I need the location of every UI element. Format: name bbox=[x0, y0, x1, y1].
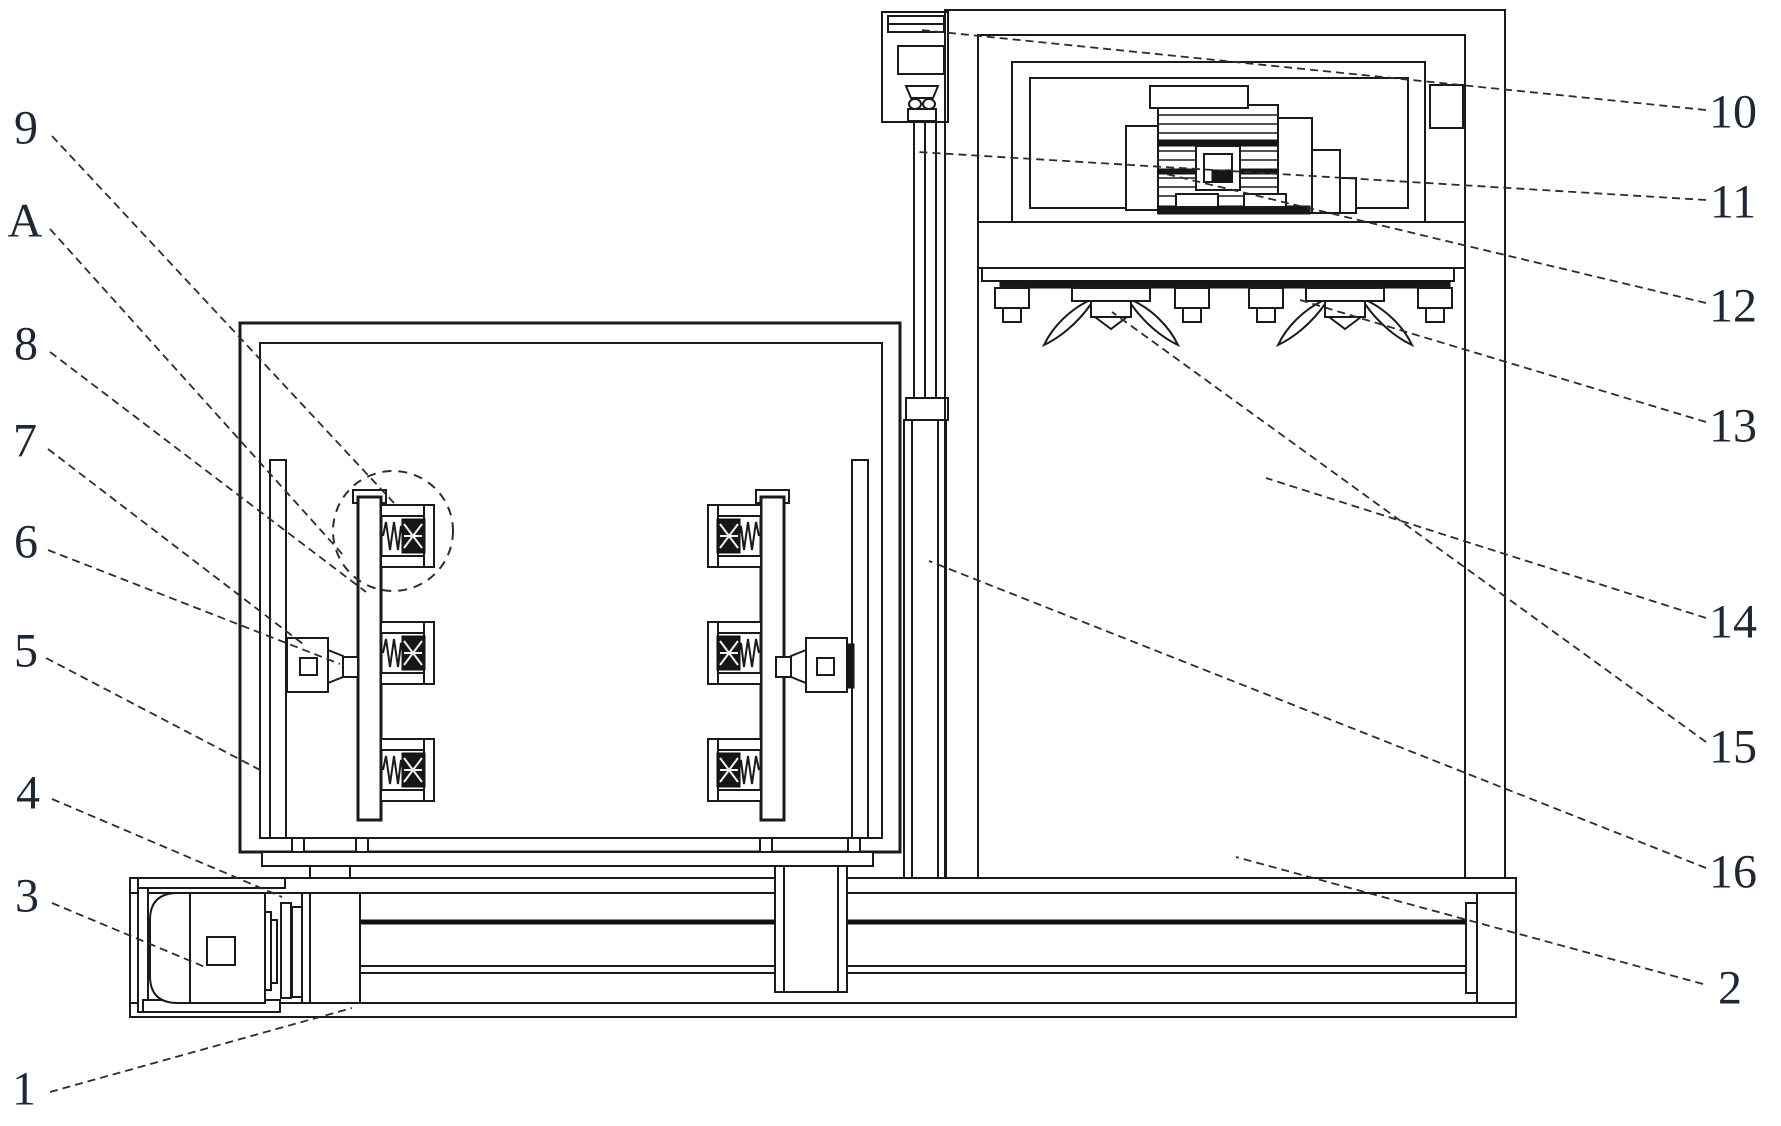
callout-leader-15 bbox=[1112, 312, 1706, 742]
nozzle-fitting bbox=[995, 288, 1029, 322]
callout-label-8: 8 bbox=[14, 318, 38, 371]
spray-nozzle-right bbox=[1278, 288, 1412, 345]
nozzle-fitting bbox=[1418, 288, 1452, 322]
callout-label-9: 9 bbox=[14, 102, 38, 155]
lift-tube bbox=[904, 420, 946, 878]
lift-collar bbox=[906, 398, 948, 420]
callout-leader-14 bbox=[1266, 478, 1706, 618]
callout-leader-16 bbox=[929, 561, 1706, 868]
left-upright bbox=[270, 460, 286, 838]
callout-label-6: 6 bbox=[14, 516, 38, 569]
callout-label-4: 4 bbox=[16, 767, 40, 820]
callout-label-2: 2 bbox=[1718, 962, 1742, 1015]
spring-clamp bbox=[381, 622, 434, 684]
spring-clamp bbox=[708, 739, 761, 801]
callout-label-12: 12 bbox=[1709, 280, 1757, 333]
figure-canvas: 9A8765431101112131415162 bbox=[0, 0, 1781, 1126]
lift-bracket bbox=[882, 12, 948, 122]
chamber-bottom-plate bbox=[262, 852, 873, 866]
callout-label-16: 16 bbox=[1709, 846, 1757, 899]
base-drive-motor bbox=[138, 878, 360, 1012]
motor-3-terminal bbox=[207, 937, 235, 965]
callout-label-10: 10 bbox=[1709, 86, 1757, 139]
spring-clamp bbox=[381, 505, 434, 567]
spring-clamp bbox=[381, 739, 434, 801]
clamp-plate-left bbox=[358, 497, 381, 820]
rail-end-cap bbox=[1477, 893, 1516, 1003]
nozzle-fitting bbox=[1175, 288, 1209, 322]
callout-label-3: 3 bbox=[15, 870, 39, 923]
spray-nozzle-left bbox=[1044, 288, 1178, 345]
callout-label-A: A bbox=[8, 195, 43, 248]
callout-label-5: 5 bbox=[14, 625, 38, 678]
patent-figure: 9A8765431101112131415162 bbox=[0, 0, 1781, 1126]
callout-leader-1 bbox=[50, 1008, 352, 1092]
nozzle-bar bbox=[1000, 281, 1450, 288]
callout-label-1: 1 bbox=[12, 1063, 36, 1116]
spray-tower bbox=[945, 10, 1505, 878]
callout-label-14: 14 bbox=[1709, 596, 1757, 649]
nozzle-fitting bbox=[1249, 288, 1283, 322]
callout-leader-5 bbox=[46, 658, 262, 771]
callout-label-7: 7 bbox=[13, 415, 37, 468]
callout-label-15: 15 bbox=[1709, 721, 1757, 774]
callout-label-13: 13 bbox=[1709, 400, 1757, 453]
base-bottom-plate bbox=[130, 1003, 1516, 1017]
left-chamber-inner-wall bbox=[260, 343, 882, 838]
callout-label-11: 11 bbox=[1710, 176, 1756, 229]
spring-clamp bbox=[708, 505, 761, 567]
support-column bbox=[775, 866, 847, 992]
nozzle-header bbox=[978, 222, 1465, 345]
spring-clamp bbox=[708, 622, 761, 684]
motor-compartment bbox=[1012, 62, 1463, 222]
